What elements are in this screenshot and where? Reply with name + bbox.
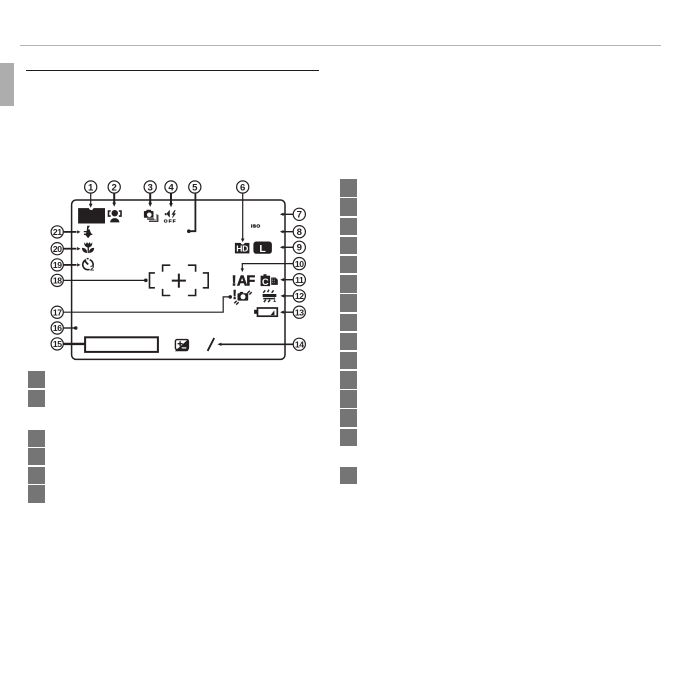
svg-text:12: 12 — [295, 291, 304, 301]
svg-text:14: 14 — [295, 340, 304, 350]
svg-text:11: 11 — [295, 275, 304, 285]
svg-text:2: 2 — [90, 264, 94, 273]
svg-text:4: 4 — [168, 182, 174, 193]
svg-text:21: 21 — [53, 227, 62, 237]
svg-text:OFF: OFF — [164, 219, 177, 225]
svg-text:8: 8 — [297, 227, 303, 238]
svg-text:2: 2 — [112, 182, 117, 193]
svg-text:1: 1 — [88, 182, 94, 193]
svg-text:3: 3 — [148, 182, 153, 193]
svg-text:20: 20 — [53, 244, 62, 254]
svg-text:HD: HD — [236, 244, 248, 254]
svg-text:L: L — [259, 243, 266, 255]
svg-text:!: ! — [233, 287, 237, 302]
svg-text:C: C — [262, 277, 269, 287]
svg-text:17: 17 — [53, 307, 62, 317]
svg-text:7: 7 — [297, 210, 302, 221]
svg-text:19: 19 — [53, 260, 62, 270]
svg-text:ISO: ISO — [251, 224, 260, 230]
svg-text:5: 5 — [192, 182, 198, 193]
svg-text:6: 6 — [240, 182, 245, 193]
svg-text:13: 13 — [295, 307, 304, 317]
svg-text:1: 1 — [273, 298, 277, 304]
svg-text:AF: AF — [237, 273, 255, 289]
svg-text:15: 15 — [53, 339, 62, 349]
svg-text:10: 10 — [295, 259, 304, 269]
svg-text:9: 9 — [297, 243, 302, 254]
svg-text:18: 18 — [53, 276, 62, 286]
svg-text:16: 16 — [53, 323, 62, 333]
